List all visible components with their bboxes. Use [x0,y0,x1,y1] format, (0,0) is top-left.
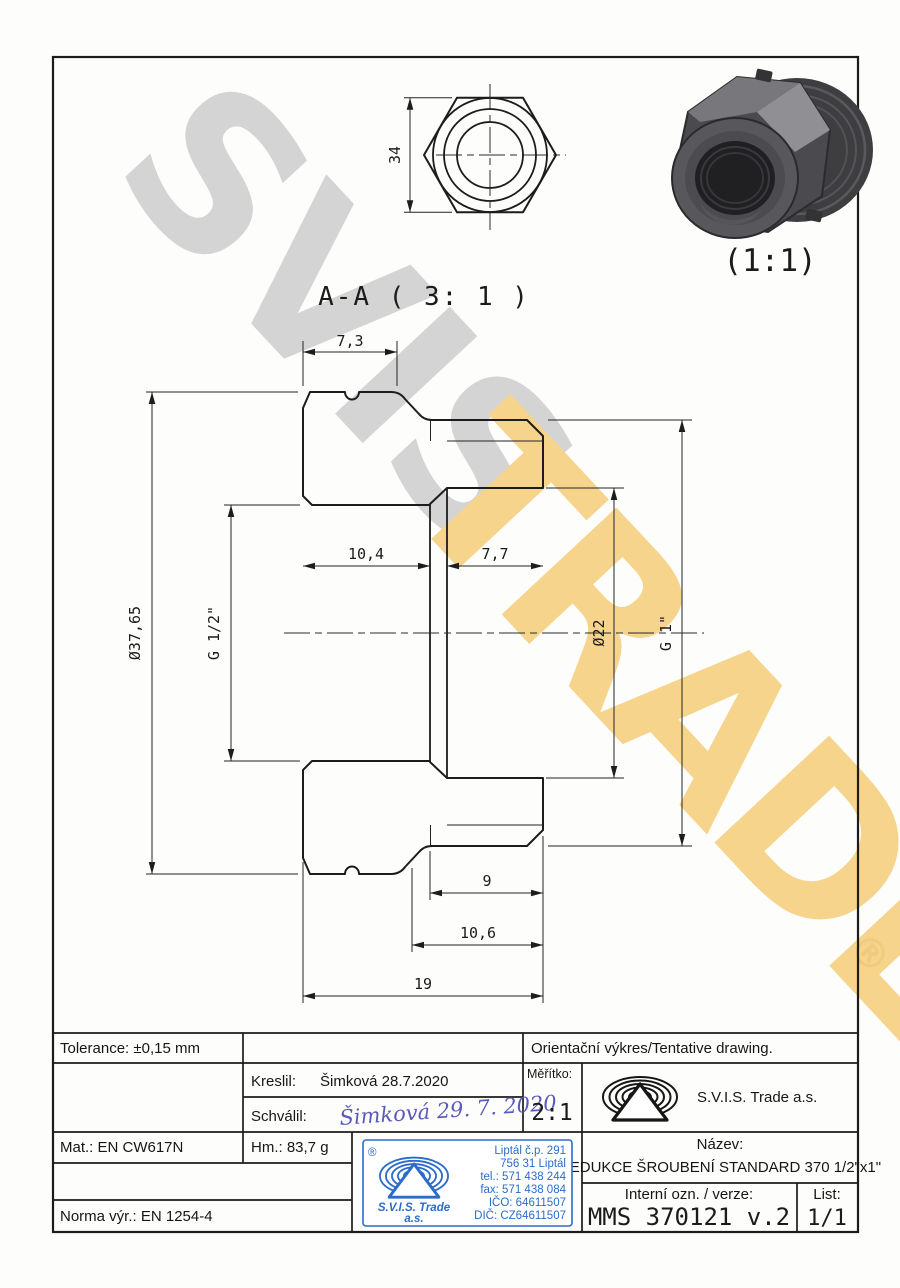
stamp-fax-line: fax: 571 438 084 [480,1184,566,1196]
stamp-dic-line: DIČ: CZ64611507 [474,1209,566,1222]
stamp-address-line2: 756 31 Liptál [500,1158,566,1170]
stamp-company-suffix: a.s. [404,1213,423,1225]
dim-right-bore-depth-label: 7,7 [481,545,508,563]
nazev-value: REDUKCE ŠROUBENÍ STANDARD 370 1/2"x1" [559,1159,881,1176]
mat-text: Mat.: EN CW617N [60,1139,183,1156]
watermark-word-trade: TRADE [358,364,900,1087]
dim-right-thread-label: G 1" [657,615,675,651]
stamp-phone-line: tel.: 571 438 244 [480,1171,566,1183]
norma-text: Norma výr.: EN 1254-4 [60,1208,213,1225]
dim-right-bore-dia-label: Ø22 [590,619,608,646]
dim-left-bore-depth-label: 10,4 [348,545,384,563]
dim-across-flats-label: 34 [386,146,404,164]
dim-cylinder-length-label: 10,6 [460,924,496,942]
hm-text: Hm.: 83,7 g [251,1139,329,1156]
list-value: 1/1 [807,1206,847,1231]
drawing-sheet: SVIS TRADE ® 34 (1:1) A [0,0,900,1288]
company-name: S.V.I.S. Trade a.s. [697,1089,817,1106]
dim-outer-dia-label: Ø37,65 [126,606,144,660]
title-block: Tolerance: ±0,15 mm Orientační výkres/Te… [53,1033,881,1232]
list-label: List: [813,1186,841,1203]
tolerance-text: Tolerance: ±0,15 mm [60,1040,200,1057]
meritko-label: Měřítko: [527,1067,572,1081]
meritko-value: 2:1 [531,1100,573,1126]
nazev-label: Název: [697,1136,744,1153]
orientation-note-text: Orientační výkres/Tentative drawing. [531,1040,773,1057]
section-title: A-A ( 3: 1 ) [318,282,530,312]
iso-3d-view: (1:1) [672,68,873,279]
interni-label: Interní ozn. / verze: [625,1186,753,1203]
schvalil-label: Schválil: [251,1108,307,1125]
dim-top-width-label: 7,3 [336,332,363,350]
dim-total-length-label: 19 [414,975,432,993]
interni-value: MMS 370121 v.2 [588,1203,790,1231]
dim-thread-length-label: 9 [482,872,491,890]
company-logo [603,1077,677,1120]
stamp-address-line1: Liptál č.p. 291 [494,1145,566,1157]
company-stamp: ® S.V.I.S. Trade a.s. Liptál č.p. 291 75… [363,1140,572,1226]
kreslil-value: Šimková 28.7.2020 [320,1073,448,1090]
kreslil-label: Kreslil: [251,1073,296,1090]
stamp-ico-line: IČO: 64611507 [489,1196,566,1209]
dim-left-thread-label: G 1/2" [205,606,223,660]
iso-scale-label: (1:1) [723,243,816,279]
stamp-registered-mark: ® [368,1147,377,1159]
